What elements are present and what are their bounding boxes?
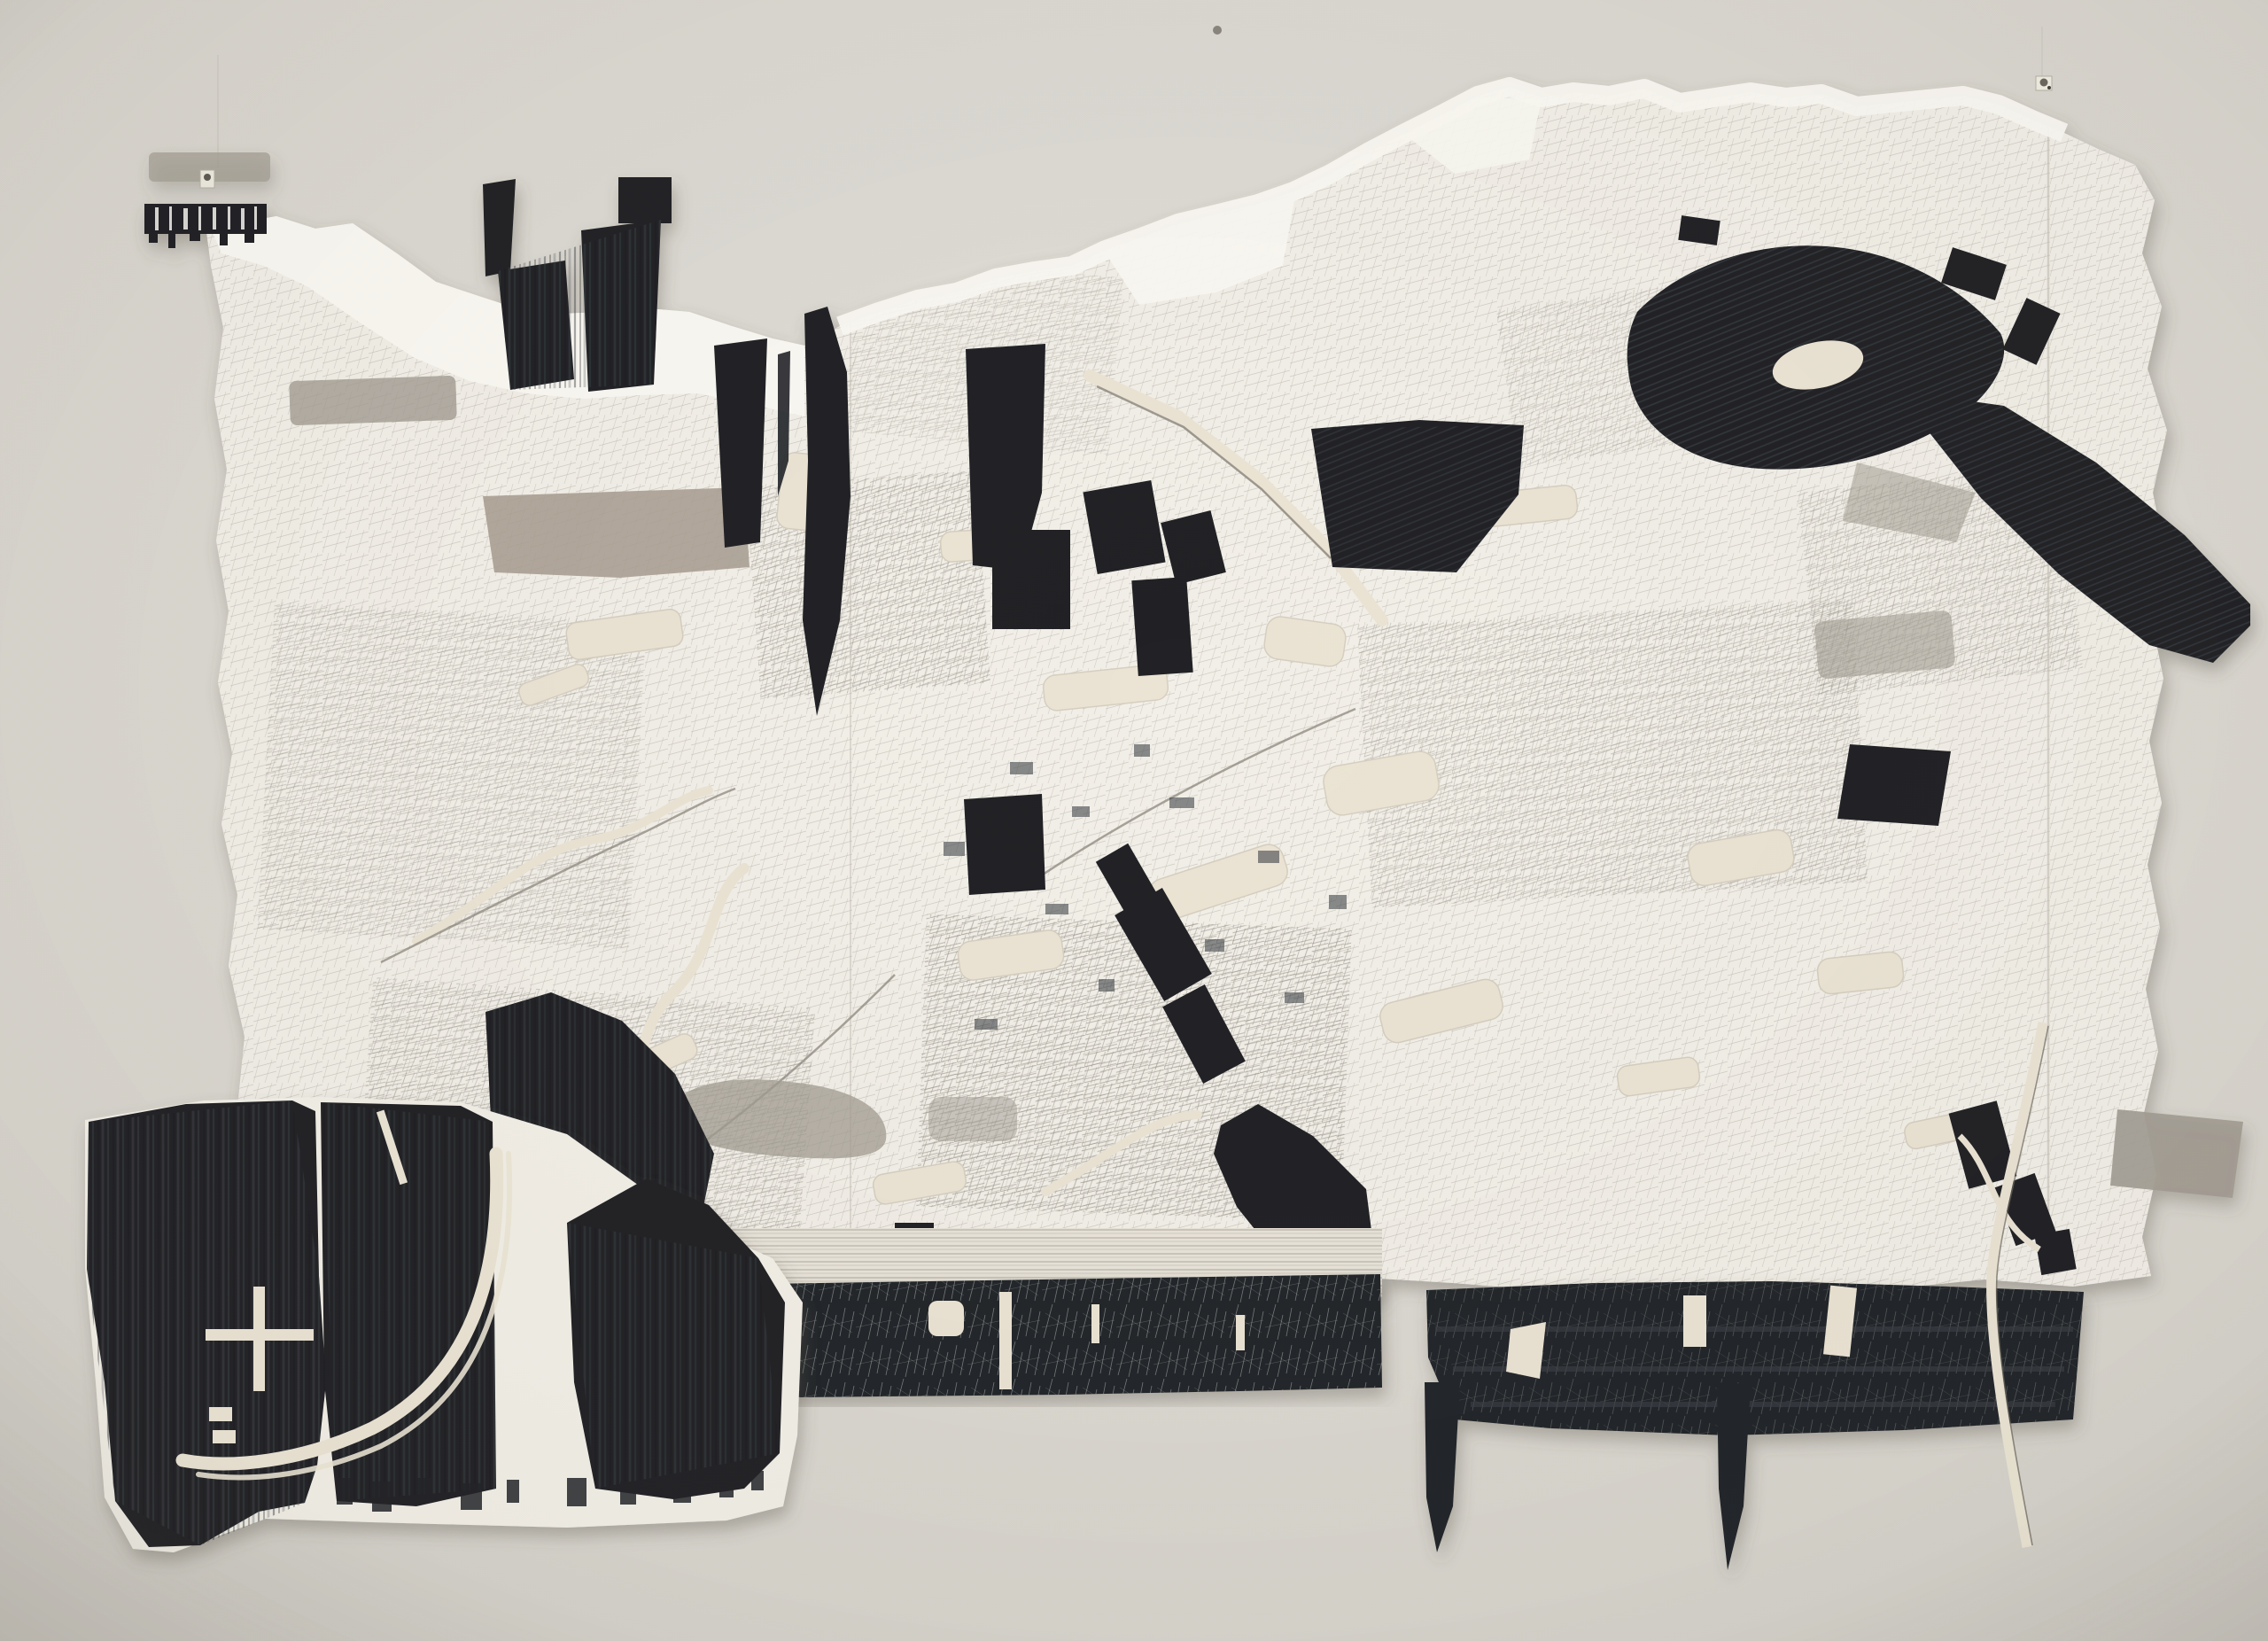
- artwork-photo-canvas: [0, 0, 2268, 1641]
- photo-vignette: [0, 0, 2268, 1641]
- photo-of-artwork: [0, 0, 2268, 1641]
